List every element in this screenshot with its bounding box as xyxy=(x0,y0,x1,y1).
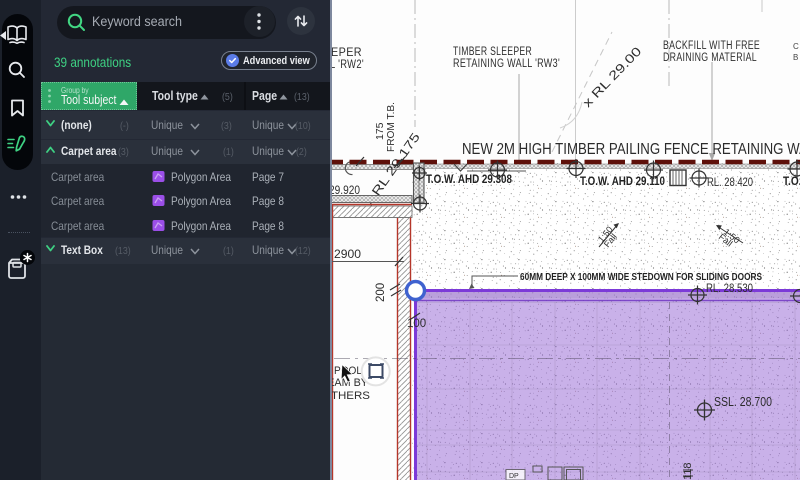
svg-text:TIMBER SLEEPER: TIMBER SLEEPER xyxy=(453,46,532,58)
svg-text:T.O.W. AHD 29.308: T.O.W. AHD 29.308 xyxy=(426,172,512,186)
svg-text:200: 200 xyxy=(375,283,387,302)
svg-text:60MM DEEP X 100MM WIDE STEDOWN: 60MM DEEP X 100MM WIDE STEDOWN FOR SLIDI… xyxy=(520,272,762,283)
svg-text:FROM T.B.: FROM T.B. xyxy=(385,102,397,152)
svg-text:BACKFILL WITH FREE: BACKFILL WITH FREE xyxy=(663,40,760,52)
svg-text:DP: DP xyxy=(509,473,519,480)
svg-text:RL. 28.530: RL. 28.530 xyxy=(706,283,753,295)
svg-text:SSL. 28.700: SSL. 28.700 xyxy=(714,395,772,409)
svg-text:C: C xyxy=(793,42,799,51)
svg-text:29.920: 29.920 xyxy=(329,185,360,197)
svg-text:2900: 2900 xyxy=(334,249,361,261)
svg-text:EPER: EPER xyxy=(331,47,362,59)
svg-text:100: 100 xyxy=(407,318,426,330)
svg-text:RL. 28.420: RL. 28.420 xyxy=(707,177,753,189)
svg-text:118: 118 xyxy=(682,462,694,480)
svg-text:T.O.W. AHD 29.110: T.O.W. AHD 29.110 xyxy=(580,174,665,188)
svg-text:RETAINING WALL 'RW3': RETAINING WALL 'RW3' xyxy=(453,58,560,70)
svg-text:DRAINING MATERIAL: DRAINING MATERIAL xyxy=(663,52,757,64)
svg-text:NEW 2M HIGH TIMBER PAILING FEN: NEW 2M HIGH TIMBER PAILING FENCE RETAINI… xyxy=(462,141,800,158)
svg-text:L 'RW2': L 'RW2' xyxy=(330,59,364,71)
svg-text:B: B xyxy=(793,53,798,62)
